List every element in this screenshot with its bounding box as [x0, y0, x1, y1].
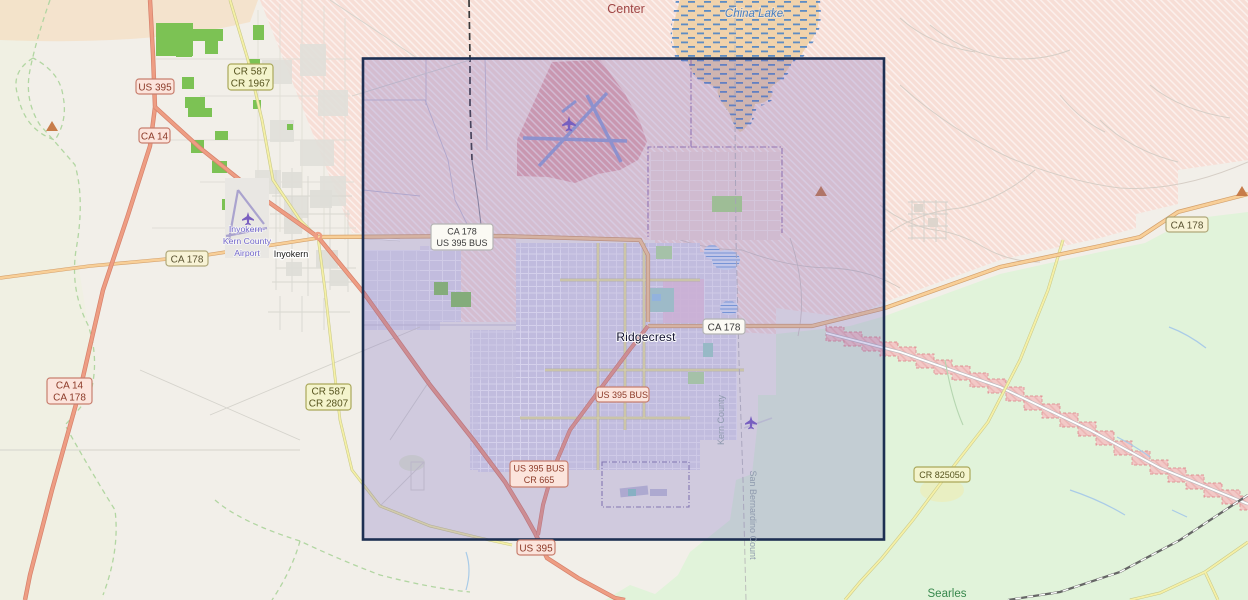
svg-text:US 395 BUS: US 395 BUS: [436, 238, 487, 248]
svg-text:CA 178: CA 178: [447, 227, 477, 237]
svg-text:Kern County: Kern County: [716, 394, 726, 445]
svg-text:CA 14: CA 14: [56, 381, 84, 392]
svg-text:China Lake: China Lake: [725, 8, 783, 20]
svg-text:CA 14: CA 14: [141, 132, 169, 143]
svg-text:CA 178: CA 178: [1171, 221, 1204, 232]
svg-text:CR 825050: CR 825050: [919, 470, 965, 480]
svg-text:CR 587: CR 587: [312, 387, 346, 398]
svg-text:CR 2807: CR 2807: [309, 399, 349, 410]
svg-text:US 395 BUS: US 395 BUS: [513, 464, 564, 474]
svg-text:US 395: US 395: [138, 83, 172, 94]
svg-text:San Bernardino Count: San Bernardino Count: [748, 470, 758, 560]
svg-text:US 395: US 395: [519, 544, 553, 555]
svg-text:Kern County: Kern County: [223, 236, 272, 246]
svg-text:CR 1967: CR 1967: [231, 79, 271, 90]
svg-text:Airport: Airport: [234, 248, 260, 258]
svg-text:CR 587: CR 587: [234, 67, 268, 78]
svg-text:CA 178: CA 178: [171, 255, 204, 266]
svg-text:Searles: Searles: [928, 588, 967, 600]
svg-text:CA 178: CA 178: [708, 323, 741, 334]
svg-text:Ridgecrest: Ridgecrest: [616, 330, 676, 344]
svg-text:Center: Center: [607, 2, 645, 16]
svg-text:Inyokern-: Inyokern-: [229, 224, 265, 234]
svg-text:US 395 BUS: US 395 BUS: [597, 390, 648, 400]
svg-text:Inyokern: Inyokern: [274, 249, 309, 259]
svg-text:CR 665: CR 665: [524, 475, 555, 485]
svg-text:CA 178: CA 178: [53, 393, 86, 404]
